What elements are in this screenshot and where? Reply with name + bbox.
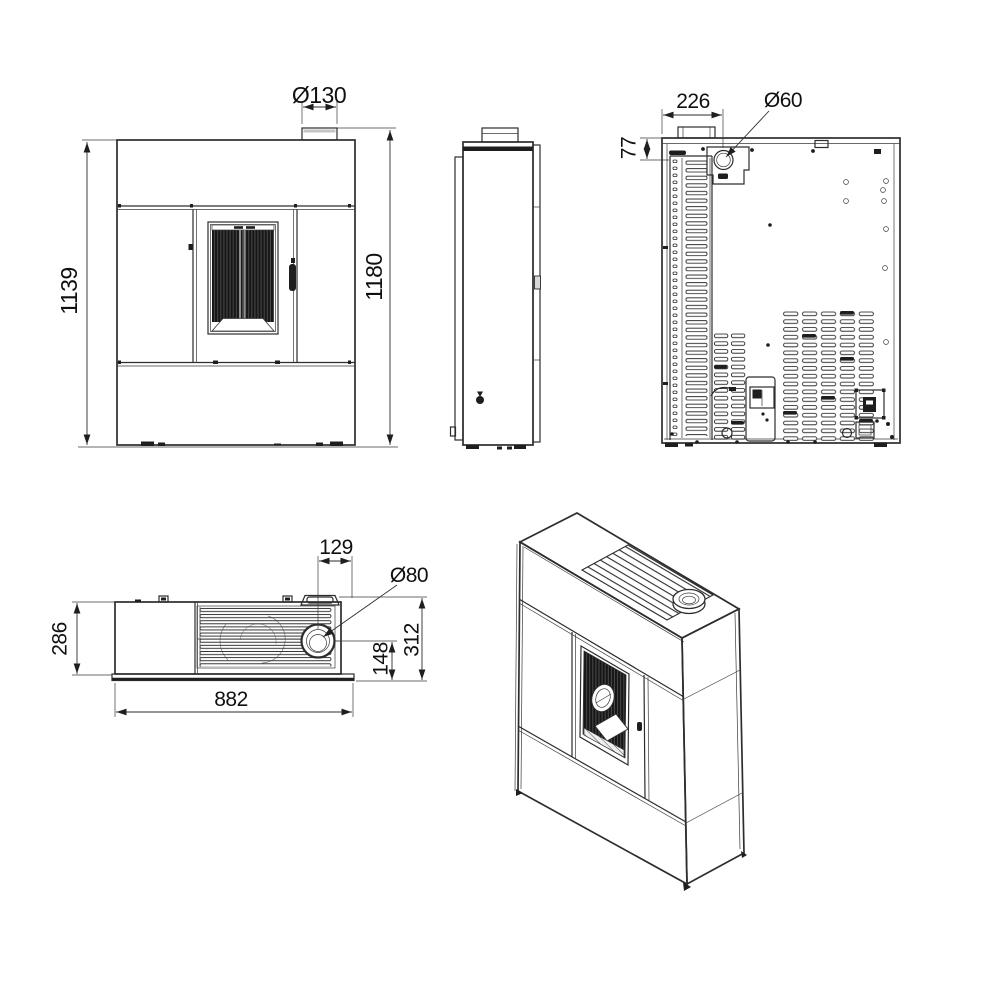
dim-flue-diameter-front: Ø130	[292, 82, 346, 108]
rear-top-screws	[701, 147, 880, 154]
technical-drawing-page: 1139 1180 Ø130	[0, 0, 1000, 1000]
handle-side	[535, 276, 541, 289]
rear-access-panel	[746, 377, 775, 441]
door-hinge	[189, 244, 193, 250]
iso-side-face	[682, 609, 744, 884]
door-handle	[289, 264, 296, 291]
dim-rear: 226 77 Ø60	[618, 89, 803, 160]
dim-flue-diameter-top: Ø80	[390, 564, 428, 587]
side-front-edge	[533, 145, 540, 442]
log-retainer	[212, 319, 274, 332]
front-view: 1139 1180 Ø130	[56, 82, 398, 447]
flue-stub-side	[482, 128, 518, 142]
dim-flue-from-right: 129	[319, 536, 353, 559]
firebox-door	[208, 222, 278, 334]
dim-flue-from-left: 226	[676, 90, 710, 113]
stove-dimension-drawing: 1139 1180 Ø130	[0, 0, 1000, 1000]
air-inlet-assembly	[707, 147, 749, 184]
wall-hanger-slot	[669, 151, 686, 156]
dim-body-depth: 286	[49, 622, 72, 656]
rear-left-vent-strip	[663, 156, 712, 440]
flue-collar-top	[301, 596, 339, 606]
junction-bracket	[815, 141, 828, 148]
rear-view: 226 77 Ø60	[618, 89, 900, 447]
iso-door-handle	[637, 722, 642, 731]
iso-front-seams	[518, 599, 742, 826]
dim-total-depth: 312	[401, 623, 424, 657]
isometric-view	[515, 513, 747, 891]
top-view: 286 882 129 Ø80 312 148	[49, 536, 429, 717]
dim-body-height: 1139	[56, 267, 82, 314]
flue-stub-front	[302, 128, 337, 140]
dim-total-width: 882	[214, 688, 248, 711]
dim-flue-from-front: 148	[370, 642, 393, 676]
dim-air-inlet-diameter: Ø60	[764, 89, 802, 112]
keyhole-detail	[476, 396, 484, 404]
side-view	[451, 128, 541, 450]
rear-heat-shield	[455, 157, 463, 440]
dim-total-height: 1180	[361, 253, 387, 300]
iso-flue-collar	[673, 590, 705, 614]
iso-feet	[516, 789, 747, 891]
door-glass	[212, 230, 274, 322]
side-body-outline	[463, 142, 533, 445]
flue-outlet-top	[302, 625, 335, 658]
dim-inlet-from-top: 77	[618, 137, 641, 159]
rear-vent-fields	[713, 310, 875, 441]
flue-stub-rear	[678, 127, 715, 138]
